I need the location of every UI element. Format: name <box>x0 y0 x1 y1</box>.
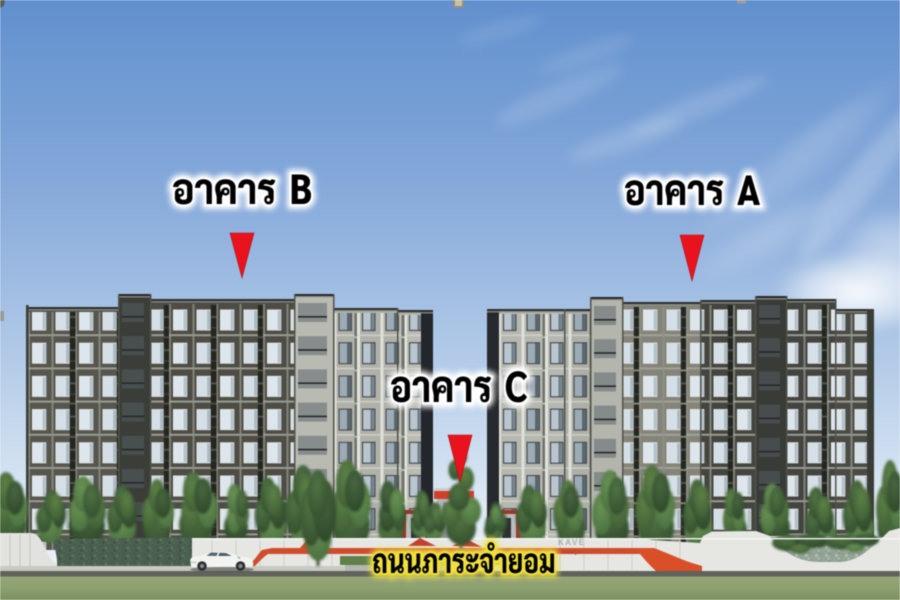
svg-text:KAVE: KAVE <box>558 538 586 547</box>
svg-text:embryo: embryo <box>561 550 582 556</box>
